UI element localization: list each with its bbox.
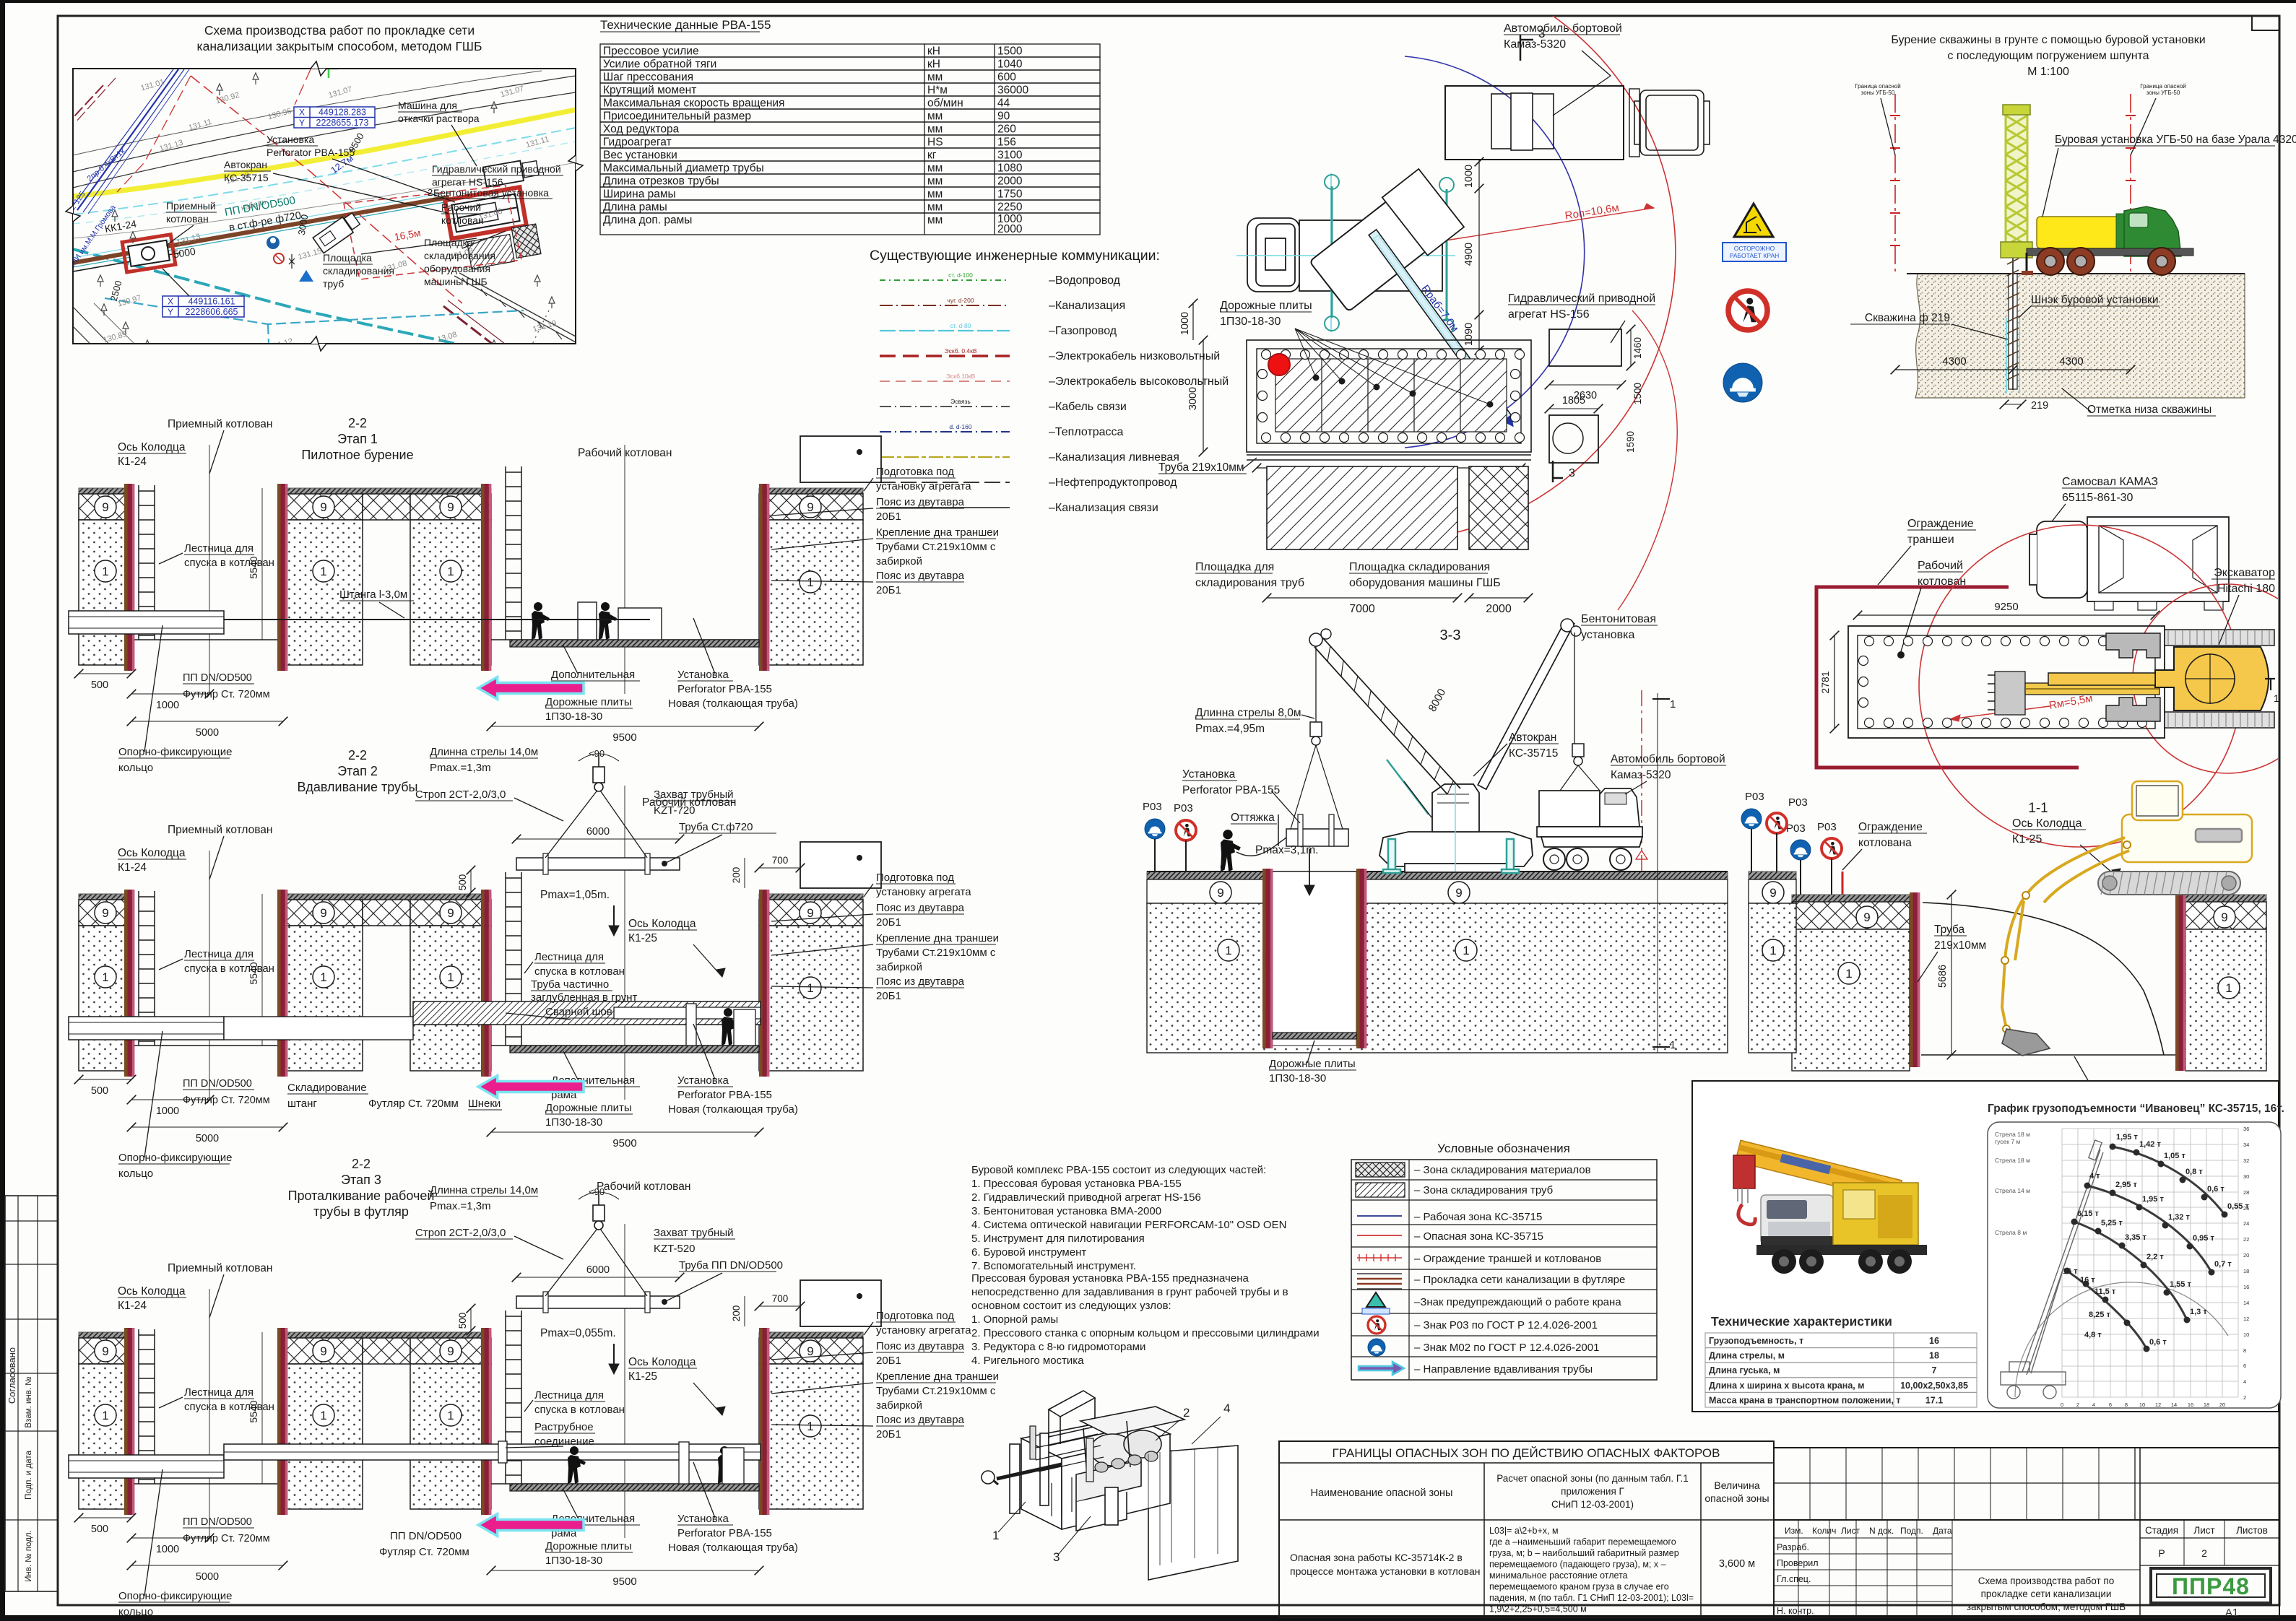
- svg-text:20Б1: 20Б1: [876, 584, 901, 596]
- svg-text:Pmax.=1,3m: Pmax.=1,3m: [430, 1200, 491, 1212]
- svg-text:Стрела 18 м: Стрела 18 м: [1995, 1157, 2030, 1164]
- svg-text:Y: Y: [168, 307, 173, 317]
- svg-text:Трубами Ст.219х10мм с: Трубами Ст.219х10мм с: [876, 1385, 996, 1397]
- svg-text:1: 1: [807, 1420, 813, 1433]
- svg-text:кольцо: кольцо: [118, 1168, 153, 1180]
- svg-text:2: 2: [428, 187, 433, 198]
- svg-text:3,35 т: 3,35 т: [2125, 1233, 2146, 1242]
- svg-text:219: 219: [2031, 400, 2048, 412]
- svg-text:Бентонитовая: Бентонитовая: [1581, 613, 1656, 625]
- svg-text:3-3: 3-3: [1440, 627, 1461, 643]
- svg-text:9: 9: [1455, 886, 1462, 900]
- svg-text:2228606.665: 2228606.665: [186, 307, 238, 317]
- svg-text:20Б1: 20Б1: [876, 990, 901, 1002]
- svg-text:1П30-18-30: 1П30-18-30: [545, 710, 602, 723]
- svg-text:основном состоит из следующих: основном состоит из следующих узлов:: [971, 1300, 1171, 1312]
- svg-text:Y: Y: [299, 118, 305, 128]
- svg-text:1: 1: [1463, 944, 1469, 957]
- svg-text:Приемный котлован: Приемный котлован: [168, 824, 272, 836]
- svg-text:Pmax=0,055m.: Pmax=0,055m.: [540, 1327, 616, 1339]
- svg-text:2228655.173: 2228655.173: [316, 118, 369, 128]
- svg-text:26: 26: [2243, 1205, 2249, 1212]
- svg-text:Опорно-фиксирующие: Опорно-фиксирующие: [118, 1590, 232, 1602]
- svg-text:Perforator PBA-155: Perforator PBA-155: [677, 1089, 772, 1101]
- svg-text:Опасная зона работы КС-35714К-: Опасная зона работы КС-35714К-2 в: [1290, 1552, 1463, 1563]
- svg-text:К1-24: К1-24: [118, 861, 147, 874]
- svg-text:20Б1: 20Б1: [876, 1428, 901, 1440]
- svg-text:8,25 т: 8,25 т: [2089, 1311, 2110, 1319]
- svg-text:Ширина рамы: Ширина рамы: [603, 188, 676, 201]
- svg-text:Самосвал КАМАЗ: Самосвал КАМАЗ: [2062, 476, 2158, 488]
- svg-text:Pmax.=4,95m: Pmax.=4,95m: [1195, 723, 1265, 735]
- svg-text:Рабочий котлован: Рабочий котлован: [597, 1181, 690, 1193]
- svg-text:установку агрегата: установку агрегата: [876, 1324, 971, 1337]
- svg-text:Пояс из двутавра: Пояс из двутавра: [876, 1414, 965, 1426]
- svg-text:1: 1: [447, 1409, 454, 1422]
- svg-text:2000: 2000: [997, 223, 1023, 235]
- svg-text:Шнэк буровой установки: Шнэк буровой установки: [2031, 294, 2159, 306]
- svg-text:Строп 2СТ-2,0/3,0: Строп 2СТ-2,0/3,0: [415, 1227, 506, 1239]
- svg-text:1: 1: [102, 1409, 108, 1422]
- svg-text:Рабочий котлован: Рабочий котлован: [642, 796, 736, 809]
- svg-text:Лестница для: Лестница для: [184, 948, 254, 960]
- svg-text:Лист: Лист: [1841, 1526, 1860, 1536]
- svg-text:Футляр Ст. 720мм: Футляр Ст. 720мм: [368, 1098, 459, 1110]
- svg-text:1,55 т: 1,55 т: [2170, 1280, 2191, 1289]
- svg-text:1: 1: [102, 565, 108, 578]
- svg-text:агрегат HS-156: агрегат HS-156: [1508, 308, 1590, 321]
- svg-text:Шаг прессования: Шаг прессования: [603, 71, 693, 84]
- svg-text:Крутящий момент: Крутящий момент: [603, 84, 696, 97]
- svg-text:Экскаватор: Экскаватор: [2214, 567, 2275, 579]
- svg-text:Лестница для: Лестница для: [534, 1389, 604, 1401]
- svg-text:4: 4: [2092, 1401, 2095, 1408]
- svg-text:Схема производства работ по: Схема производства работ по: [1978, 1576, 2115, 1586]
- svg-text:– Ограждение траншей и котлова: – Ограждение траншей и котлованов: [1414, 1253, 1601, 1265]
- svg-text:Pmax.=1,3m: Pmax.=1,3m: [430, 762, 491, 774]
- svg-text:ПП DN/OD500: ПП DN/OD500: [183, 1078, 252, 1090]
- svg-text:Футляр Ст. 720мм: Футляр Ст. 720мм: [379, 1546, 469, 1558]
- svg-text:9: 9: [807, 500, 813, 514]
- svg-text:18: 18: [2243, 1268, 2249, 1274]
- svg-text:ОСТОРОЖНО: ОСТОРОЖНО: [1734, 245, 1775, 252]
- svg-text:Лестница для: Лестница для: [534, 951, 604, 963]
- svg-text:мм: мм: [927, 201, 943, 214]
- svg-text:Колич: Колич: [1812, 1526, 1836, 1536]
- svg-text:–Кабель связи: –Кабель связи: [1049, 401, 1127, 413]
- svg-text:Р03: Р03: [1143, 801, 1162, 813]
- svg-text:2250: 2250: [997, 201, 1023, 214]
- svg-text:12: 12: [2155, 1401, 2161, 1408]
- svg-text:9: 9: [1217, 886, 1223, 900]
- svg-text:К1-24: К1-24: [118, 1300, 147, 1312]
- svg-text:Буровая установка УГБ-50 на ба: Буровая установка УГБ-50 на базе Урала 4…: [2055, 134, 2296, 146]
- svg-text:600: 600: [997, 71, 1016, 84]
- svg-text:200: 200: [731, 867, 742, 884]
- svg-text:Эсвязь: Эсвязь: [950, 398, 971, 405]
- svg-text:забиркой: забиркой: [876, 961, 922, 973]
- svg-text:5000: 5000: [196, 1571, 219, 1583]
- svg-text:4,8 т: 4,8 т: [2084, 1331, 2102, 1339]
- svg-text:X: X: [299, 108, 305, 118]
- svg-text:Пояс из двутавра: Пояс из двутавра: [876, 570, 965, 582]
- svg-text:Подготовка под: Подготовка под: [876, 466, 954, 478]
- svg-text:1: 1: [447, 565, 454, 578]
- svg-text:Технические данные PBA-155: Технические данные PBA-155: [600, 18, 771, 32]
- svg-text:Футляр Ст. 720мм: Футляр Ст. 720мм: [183, 689, 270, 700]
- svg-text:1000: 1000: [156, 1105, 179, 1117]
- svg-text:падения, м (по табл. Г1 СНиП 1: падения, м (по табл. Г1 СНиП 12-03-2001)…: [1489, 1593, 1694, 1603]
- svg-text:65115-861-30: 65115-861-30: [2062, 492, 2133, 504]
- svg-text:–Канализация: –Канализация: [1049, 300, 1125, 312]
- svg-text:соединение: соединение: [534, 1435, 594, 1448]
- svg-text:2: 2: [2201, 1547, 2207, 1559]
- svg-text:5686: 5686: [1937, 965, 1949, 988]
- svg-text:Длина гуська, м: Длина гуська, м: [1709, 1365, 1780, 1376]
- svg-text:3,600 м: 3,600 м: [1719, 1558, 1755, 1570]
- svg-text:2. Гидравлический приводной аг: 2. Гидравлический приводной агрегат HS-1…: [971, 1191, 1201, 1204]
- svg-text:РАБОТАЕТ КРАН: РАБОТАЕТ КРАН: [1730, 252, 1780, 259]
- svg-text:6: 6: [2243, 1363, 2246, 1369]
- svg-text:260: 260: [997, 123, 1016, 136]
- svg-text:Вдавливание трубы: Вдавливание трубы: [298, 780, 418, 794]
- svg-text:10: 10: [2243, 1331, 2249, 1338]
- svg-text:L03|= a\2+b+x, м: L03|= a\2+b+x, м: [1489, 1526, 1559, 1536]
- svg-text:Изм.: Изм.: [1785, 1526, 1803, 1536]
- svg-text:перемещаемого (падающего груза: перемещаемого (падающего груза), м; х –: [1489, 1560, 1666, 1570]
- svg-text:Подготовка под: Подготовка под: [876, 1310, 954, 1322]
- svg-text:1,3 т: 1,3 т: [2190, 1308, 2207, 1316]
- svg-text:5. Инструмент для пилотировани: 5. Инструмент для пилотирования: [971, 1233, 1145, 1245]
- svg-text:1805: 1805: [1562, 395, 1585, 407]
- svg-text:Длина доп. рамы: Длина доп. рамы: [603, 214, 692, 227]
- svg-text:КС-35715: КС-35715: [224, 172, 269, 183]
- svg-text:9: 9: [320, 1344, 326, 1358]
- svg-text:1П30-18-30: 1П30-18-30: [1269, 1072, 1326, 1085]
- svg-text:3100: 3100: [997, 149, 1023, 162]
- svg-text:Стадия: Стадия: [2145, 1525, 2178, 1536]
- svg-text:Гл.спец.: Гл.спец.: [1777, 1574, 1811, 1584]
- svg-text:4 т: 4 т: [2089, 1172, 2100, 1181]
- svg-text:1500: 1500: [997, 45, 1023, 58]
- svg-text:2. Прессового станка с опорным: 2. Прессового станка с опорным кольцом и…: [971, 1327, 1320, 1339]
- svg-text:2: 2: [2243, 1394, 2246, 1401]
- svg-text:Пояс из двутавра: Пояс из двутавра: [876, 902, 965, 914]
- svg-text:Камаз-5320: Камаз-5320: [1611, 769, 1671, 781]
- svg-text:500: 500: [457, 1313, 468, 1329]
- svg-text:Дорожные плиты: Дорожные плиты: [1220, 300, 1312, 312]
- svg-text:6: 6: [2109, 1401, 2112, 1408]
- svg-text:траншеи: траншеи: [1907, 534, 1954, 546]
- svg-text:4900: 4900: [1463, 243, 1475, 266]
- svg-text:Гидроагрегат: Гидроагрегат: [603, 136, 672, 149]
- svg-text:18: 18: [2204, 1401, 2209, 1408]
- svg-text:–Знак предупреждающий о работе: –Знак предупреждающий о работе крана: [1414, 1296, 1621, 1308]
- svg-text:9500: 9500: [612, 1576, 636, 1588]
- svg-text:Стрела 18 м: Стрела 18 м: [1995, 1131, 2030, 1138]
- svg-text:Ось Колодца: Ось Колодца: [2012, 817, 2082, 830]
- svg-text:Новая (толкающая труба): Новая (толкающая труба): [668, 697, 798, 710]
- svg-text:Приемный: Приемный: [166, 200, 216, 212]
- svg-text:Условные обозначения: Условные обозначения: [1437, 1142, 1570, 1155]
- svg-text:44: 44: [997, 97, 1010, 110]
- svg-text:1000: 1000: [1463, 165, 1475, 188]
- svg-text:1П30-18-30: 1П30-18-30: [545, 1116, 602, 1129]
- svg-text:Крепление дна траншеи: Крепление дна траншеи: [876, 932, 999, 944]
- svg-text:груза, м; b – наибольший габар: груза, м; b – наибольший габаритный разм…: [1489, 1548, 1679, 1558]
- svg-text:4. Ригельного мостика: 4. Ригельного мостика: [971, 1355, 1084, 1367]
- svg-text:Этап 3: Этап 3: [341, 1173, 381, 1187]
- svg-text:–Нефтепродуктопровод: –Нефтепродуктопровод: [1049, 477, 1177, 489]
- svg-text:непосредственно для задавливан: непосредственно для задавливания в грунт…: [971, 1286, 1288, 1298]
- svg-text:Крепление дна траншеи: Крепление дна траншеи: [876, 526, 999, 539]
- svg-text:1: 1: [1769, 944, 1776, 957]
- svg-text:кг: кг: [927, 149, 937, 162]
- svg-text:Эскб. 0.4кВ: Эскб. 0.4кВ: [944, 347, 976, 355]
- svg-text:9: 9: [447, 1344, 454, 1358]
- svg-text:9: 9: [320, 500, 326, 514]
- svg-text:9500: 9500: [612, 1137, 636, 1150]
- svg-text:X: X: [168, 297, 173, 307]
- svg-text:Проталкивание рабочей: Проталкивание рабочей: [288, 1188, 435, 1203]
- svg-text:12: 12: [2243, 1316, 2249, 1322]
- svg-text:Длина рамы: Длина рамы: [603, 201, 667, 214]
- svg-text:Масса крана в транспортном пол: Масса крана в транспортном положении, т: [1709, 1395, 1900, 1405]
- svg-text:90: 90: [997, 110, 1010, 123]
- svg-text:1: 1: [1670, 1039, 1676, 1051]
- svg-text:11,5 т: 11,5 т: [2094, 1287, 2116, 1296]
- svg-text:установку агрегата: установку агрегата: [876, 886, 971, 898]
- svg-text:КС-35715: КС-35715: [1509, 747, 1558, 760]
- svg-text:9: 9: [447, 500, 454, 514]
- svg-text:мм: мм: [927, 71, 943, 84]
- svg-text:8: 8: [2243, 1347, 2246, 1354]
- svg-text:219х10мм: 219х10мм: [1934, 939, 1986, 952]
- svg-text:2-2: 2-2: [352, 1157, 371, 1171]
- svg-text:6. Буровой инструмент: 6. Буровой инструмент: [971, 1246, 1086, 1259]
- svg-text:Установка: Установка: [267, 134, 314, 145]
- svg-text:кольцо: кольцо: [118, 1606, 153, 1618]
- svg-text:20Б1: 20Б1: [876, 510, 901, 523]
- svg-text:20: 20: [2219, 1401, 2225, 1408]
- svg-text:Pmax=3,1m.: Pmax=3,1m.: [1255, 844, 1318, 856]
- svg-text:9: 9: [447, 906, 454, 920]
- svg-text:Взам. инв. №: Взам. инв. №: [25, 1376, 33, 1427]
- svg-text:Длина отрезков трубы: Длина отрезков трубы: [603, 175, 719, 188]
- svg-text:500: 500: [91, 1524, 108, 1535]
- svg-text:1: 1: [320, 565, 326, 578]
- svg-text:Дорожные плиты: Дорожные плиты: [545, 1102, 632, 1114]
- svg-text:7: 7: [1932, 1365, 1937, 1376]
- svg-text:16: 16: [2188, 1401, 2193, 1408]
- svg-text:Этап 2: Этап 2: [337, 764, 378, 778]
- svg-text:Величина: Величина: [1714, 1479, 1759, 1491]
- svg-text:3: 3: [1569, 467, 1575, 479]
- svg-text:32: 32: [2243, 1157, 2249, 1164]
- svg-text:2-2: 2-2: [348, 748, 367, 762]
- svg-text:10,00х2,50х3,85: 10,00х2,50х3,85: [1900, 1381, 1968, 1391]
- svg-text:Установка: Установка: [1182, 768, 1236, 781]
- svg-text:1: 1: [2274, 692, 2279, 704]
- svg-text:Установка: Установка: [677, 1074, 729, 1087]
- svg-text:16: 16: [1929, 1336, 1939, 1346]
- svg-text:труб: труб: [323, 278, 344, 290]
- svg-text:агрегат HS-156: агрегат HS-156: [432, 176, 503, 188]
- svg-text:– Направление вдавливания труб: – Направление вдавливания трубы: [1414, 1363, 1593, 1376]
- svg-text:Футляр Ст. 720мм: Футляр Ст. 720мм: [183, 1533, 270, 1544]
- svg-text:HS: HS: [927, 136, 943, 149]
- svg-text:Perforator PBA-155: Perforator PBA-155: [677, 1527, 772, 1539]
- svg-text:Ограждение: Ограждение: [1907, 518, 1974, 530]
- svg-text:мм: мм: [927, 214, 943, 227]
- svg-text:9: 9: [1769, 886, 1776, 900]
- svg-text:ст. d-100: ст. d-100: [948, 271, 973, 279]
- svg-text:16 т: 16 т: [2080, 1276, 2095, 1285]
- svg-text:Опорно-фиксирующие: Опорно-фиксирующие: [118, 746, 232, 758]
- svg-text:9: 9: [320, 906, 326, 920]
- svg-text:1: 1: [992, 1529, 999, 1542]
- svg-text:Захват трубный: Захват трубный: [654, 1227, 734, 1239]
- svg-text:Н*м: Н*м: [927, 84, 948, 97]
- svg-text:Дорожные плиты: Дорожные плиты: [545, 1540, 632, 1552]
- svg-text:16 т: 16 т: [2063, 1267, 2078, 1276]
- svg-text:449128.283: 449128.283: [319, 108, 366, 118]
- svg-text:3: 3: [1053, 1550, 1060, 1564]
- svg-text:Технические характеристики: Технические характеристики: [1711, 1314, 1892, 1329]
- svg-text:9: 9: [1863, 911, 1870, 924]
- svg-text:0,95 т: 0,95 т: [2193, 1234, 2214, 1243]
- svg-text:6000: 6000: [586, 826, 610, 838]
- svg-text:котлован: котлован: [1918, 575, 1966, 588]
- svg-text:машины ГШБ: машины ГШБ: [424, 276, 488, 287]
- svg-text:установка: установка: [1581, 629, 1634, 641]
- svg-text:Pmax=1,05m.: Pmax=1,05m.: [540, 889, 610, 901]
- svg-text:К1-25: К1-25: [628, 932, 657, 944]
- svg-text:– Опасная зона КС-35715: – Опасная зона КС-35715: [1414, 1230, 1543, 1243]
- svg-text:Труба ПП DN/OD500: Труба ПП DN/OD500: [679, 1259, 783, 1272]
- svg-text:5000: 5000: [196, 1133, 219, 1144]
- svg-text:Длинна стрелы 14,0м: Длинна стрелы 14,0м: [430, 746, 538, 758]
- svg-text:Подп.: Подп.: [1900, 1526, 1923, 1536]
- svg-text:1000: 1000: [156, 700, 179, 711]
- svg-text:ПП DN/OD500: ПП DN/OD500: [183, 1516, 252, 1528]
- svg-text:трубы в футляр: трубы в футляр: [313, 1204, 409, 1219]
- svg-text:36000: 36000: [997, 84, 1028, 97]
- svg-text:2: 2: [1183, 1406, 1190, 1420]
- svg-text:Максимальный диаметр трубы: Максимальный диаметр трубы: [603, 162, 764, 175]
- svg-text:1000: 1000: [1179, 312, 1191, 335]
- svg-text:1: 1: [807, 981, 813, 995]
- svg-text:34: 34: [2243, 1142, 2249, 1148]
- svg-text:Дата: Дата: [1933, 1526, 1952, 1536]
- svg-text:1: 1: [1670, 698, 1676, 710]
- svg-text:мм: мм: [927, 188, 943, 201]
- svg-text:Р03: Р03: [1745, 791, 1764, 803]
- svg-text:1: 1: [320, 970, 326, 984]
- svg-text:– Зона складирования труб: – Зона складирования труб: [1414, 1184, 1553, 1196]
- svg-text:заглубленная в грунт: заглубленная в грунт: [531, 991, 638, 1004]
- svg-text:Длинна стрелы 14,0м: Длинна стрелы 14,0м: [430, 1184, 538, 1196]
- svg-text:Установка: Установка: [677, 1513, 729, 1525]
- svg-text:9: 9: [2221, 911, 2227, 924]
- svg-text:Дорожные плиты: Дорожные плиты: [545, 696, 632, 708]
- svg-text:Рабочий: Рабочий: [441, 201, 481, 213]
- svg-text:Крепление дна траншеи: Крепление дна траншеи: [876, 1370, 999, 1383]
- svg-text:– Прокладка сети канализации в: – Прокладка сети канализации в футляре: [1414, 1274, 1625, 1286]
- svg-text:8: 8: [2125, 1401, 2128, 1408]
- svg-text:20Б1: 20Б1: [876, 1355, 901, 1367]
- svg-text:Грузоподъемность, т: Грузоподъемность, т: [1709, 1336, 1803, 1346]
- svg-text:Гидравлический приводной: Гидравлический приводной: [1508, 292, 1655, 305]
- svg-text:1: 1: [1845, 967, 1852, 981]
- svg-text:0,6 т: 0,6 т: [2207, 1185, 2224, 1194]
- svg-text:1,05 т: 1,05 т: [2164, 1152, 2185, 1160]
- svg-text:10: 10: [2139, 1401, 2145, 1408]
- svg-text:Автомобиль бортовой: Автомобиль бортовой: [1611, 753, 1725, 765]
- svg-text:Рабочий: Рабочий: [1918, 560, 1963, 572]
- svg-text:16: 16: [2243, 1284, 2249, 1290]
- svg-text:9500: 9500: [612, 731, 636, 744]
- svg-text:Бурение скважины в грунте с по: Бурение скважины в грунте с помощью буро…: [1891, 34, 2205, 46]
- svg-text:штанг: штанг: [287, 1098, 317, 1110]
- svg-text:36: 36: [2243, 1126, 2249, 1132]
- svg-text:ППР48: ППР48: [2172, 1573, 2250, 1599]
- svg-text:Вес установки: Вес установки: [603, 149, 677, 162]
- svg-text:17.1: 17.1: [1925, 1395, 1943, 1405]
- svg-text:3. Бентонитовая установка BMA: 3. Бентонитовая установка BMA-2000: [971, 1205, 1161, 1217]
- svg-text:установку агрегата: установку агрегата: [876, 480, 971, 492]
- svg-text:4300: 4300: [2059, 355, 2083, 368]
- svg-text:9: 9: [102, 500, 108, 514]
- svg-text:ПП DN/OD500: ПП DN/OD500: [183, 672, 252, 684]
- svg-text:Длина х ширина х высота крана,: Длина х ширина х высота крана, м: [1709, 1381, 1864, 1391]
- svg-text:1П30-18-30: 1П30-18-30: [545, 1555, 602, 1567]
- svg-text:забиркой: забиркой: [876, 555, 922, 568]
- svg-text:200: 200: [731, 1305, 742, 1322]
- svg-text:1: 1: [320, 1409, 326, 1422]
- svg-text:5000: 5000: [196, 727, 219, 739]
- svg-text:К1-24: К1-24: [118, 456, 147, 468]
- svg-text:опасной зоны: опасной зоны: [1704, 1492, 1769, 1504]
- svg-text:500: 500: [457, 874, 468, 891]
- svg-text:2781: 2781: [1819, 671, 1831, 693]
- svg-text:гусек 7 м: гусек 7 м: [1995, 1138, 2020, 1145]
- svg-text:складирования труб: складирования труб: [1195, 577, 1304, 589]
- svg-text:кольцо: кольцо: [118, 762, 153, 774]
- svg-text:канализации закрытым способом,: канализации закрытым способом, методом Г…: [197, 39, 482, 53]
- svg-text:1,95 т: 1,95 т: [2142, 1195, 2164, 1204]
- svg-text:Установка: Установка: [677, 669, 729, 681]
- svg-text:складирования: складирования: [424, 250, 495, 261]
- svg-text:–Теплотрасса: –Теплотрасса: [1049, 426, 1124, 438]
- svg-text:СНиП 12-03-2001): СНиП 12-03-2001): [1551, 1499, 1634, 1510]
- svg-text:мм: мм: [927, 123, 943, 136]
- svg-text:График грузоподъемности “Ивано: График грузоподъемности “Ивановец” КС-35…: [1988, 1103, 2284, 1115]
- svg-text:Р: Р: [2158, 1547, 2165, 1559]
- svg-text:Ось Колодца: Ось Колодца: [118, 1285, 186, 1298]
- svg-text:оборудования: оборудования: [424, 263, 490, 274]
- svg-text:зоны УГБ-50: зоны УГБ-50: [2146, 90, 2180, 96]
- svg-text:Труба 219х10мм: Труба 219х10мм: [1158, 461, 1244, 474]
- svg-text:Трубами Ст.219х10мм с: Трубами Ст.219х10мм с: [876, 541, 996, 553]
- svg-text:Hitachi 180: Hitachi 180: [2217, 583, 2275, 595]
- svg-text:Ось Колодца: Ось Колодца: [118, 847, 186, 859]
- svg-text:Стрела 8 м: Стрела 8 м: [1995, 1229, 2027, 1236]
- svg-text:складирования: складирования: [323, 265, 394, 277]
- svg-text:Оттяжка: Оттяжка: [1231, 812, 1275, 824]
- svg-text:1,95 т: 1,95 т: [2116, 1133, 2138, 1142]
- svg-text:Лестница для: Лестница для: [184, 1386, 254, 1399]
